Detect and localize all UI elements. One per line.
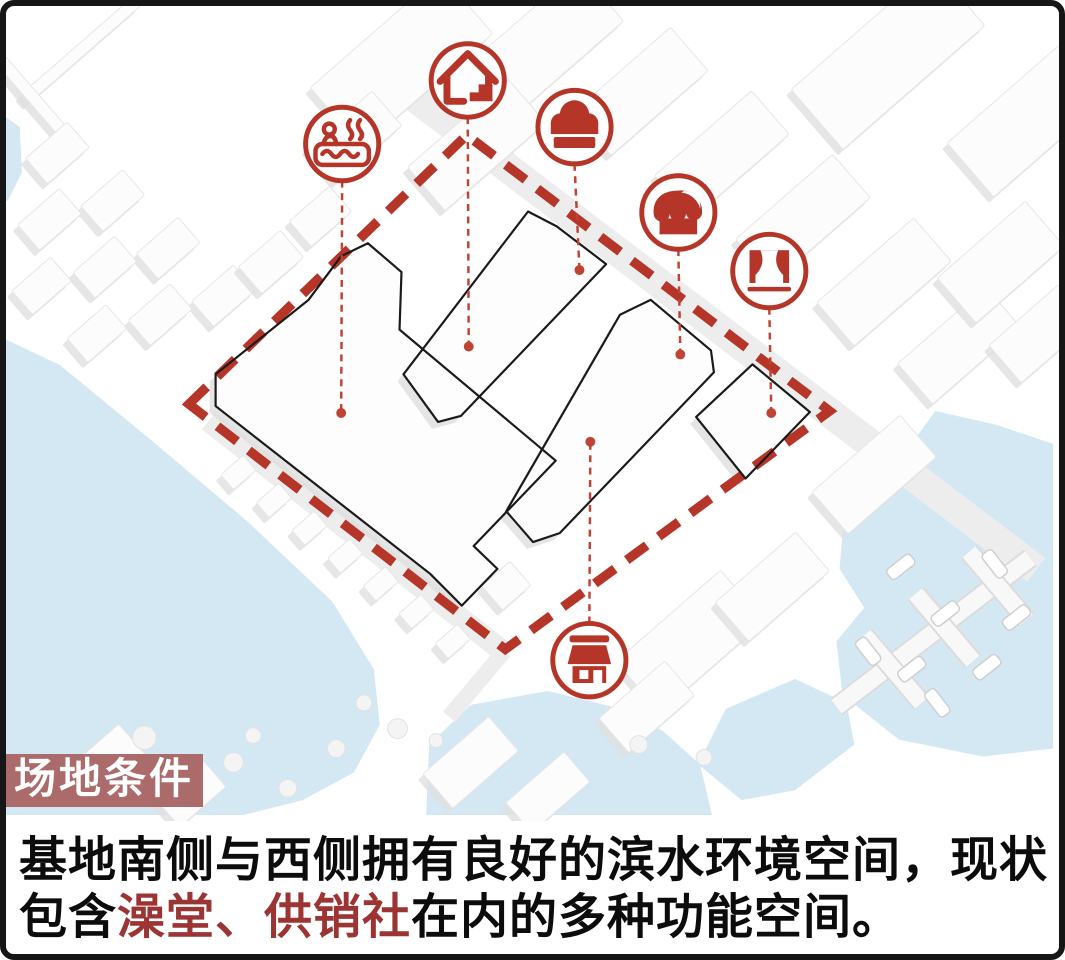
tree [388, 719, 408, 739]
tree [696, 750, 712, 766]
market-awning-icon [642, 176, 715, 249]
tree [356, 695, 372, 711]
building-block [947, 45, 1059, 197]
tree [429, 734, 443, 748]
caption-line-1: 基地南侧与西侧拥有良好的滨水环境空间，现状 [19, 832, 1049, 889]
bathhouse-icon [306, 107, 379, 180]
tree [224, 753, 244, 773]
diagram-frame: 场地条件 基地南侧与西侧拥有良好的滨水环境空间，现状 包含澡堂、供销社在内的多种… [0, 0, 1065, 960]
tree [630, 736, 648, 754]
section-label: 场地条件 [6, 754, 203, 807]
stage-curtain-icon [733, 234, 806, 307]
caption-line-2: 包含澡堂、供销社在内的多种功能空间。 [19, 889, 1049, 946]
chef-hat-icon [538, 90, 611, 163]
leader-dot [585, 437, 595, 447]
tree [133, 726, 157, 750]
caption-panel: 基地南侧与西侧拥有良好的滨水环境空间，现状 包含澡堂、供销社在内的多种功能空间。 [6, 821, 1059, 954]
caption-line-2-highlight: 澡堂、供销社 [117, 891, 411, 944]
leader-dot [675, 349, 685, 359]
site-map [6, 6, 1059, 821]
storefront-icon [553, 623, 626, 696]
water [698, 679, 854, 800]
leader-dot [464, 342, 474, 352]
leader-line [589, 442, 590, 624]
market-awning-glyph [654, 190, 703, 234]
house-icon [431, 44, 504, 117]
caption-line-2-part: 在内的多种功能空间。 [411, 891, 901, 944]
tree [245, 728, 261, 744]
tree [327, 740, 345, 758]
generated-map [6, 6, 1059, 821]
leader-dot [766, 408, 776, 418]
leader-dot [575, 265, 585, 275]
building-block [20, 6, 140, 104]
leader-dot [336, 408, 346, 418]
tree [279, 779, 297, 797]
caption-line-2-part: 包含 [19, 891, 117, 944]
water [6, 117, 22, 200]
